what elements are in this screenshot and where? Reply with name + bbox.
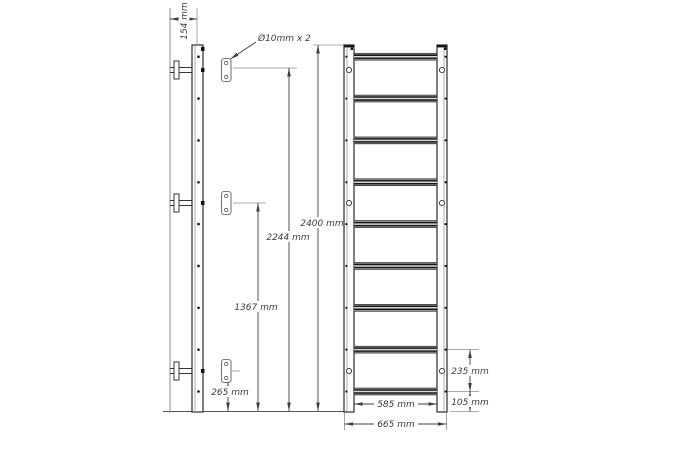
plate-hole — [225, 362, 228, 365]
rung-screw — [445, 223, 447, 225]
rung-screw — [445, 56, 447, 58]
plate-hole — [225, 75, 228, 78]
rung-screw — [445, 265, 447, 267]
label-overall-width: 665 mm — [377, 420, 415, 430]
rung — [354, 346, 437, 354]
rung — [354, 304, 437, 312]
rung — [354, 388, 437, 396]
rung-screw — [345, 390, 347, 392]
leader-mount-holes — [231, 42, 257, 59]
plate-hole — [225, 376, 228, 379]
wall-bracket-side — [170, 362, 192, 380]
bracket-wall-plate — [174, 362, 179, 380]
left-rail-top-dot — [351, 48, 353, 50]
rung-screw — [445, 181, 447, 183]
bracket-stud — [201, 369, 205, 373]
side-rung-pin — [197, 181, 200, 184]
side-rung-pin — [197, 390, 200, 393]
label-top-bracket-height: 2244 mm — [266, 233, 310, 243]
bracket-wall-plate — [174, 194, 179, 212]
rung — [354, 137, 437, 145]
bracket-stud — [201, 68, 205, 72]
rung — [354, 95, 437, 103]
right-rail-top-dot — [444, 48, 446, 50]
rung-screw — [345, 181, 347, 183]
label-depth: 154 mm — [180, 2, 190, 40]
rung-screw — [345, 307, 347, 309]
rung-screw — [445, 97, 447, 99]
side-rung-pin — [197, 265, 200, 268]
side-rung-pin — [197, 97, 200, 100]
rail-mount-hole — [439, 67, 444, 72]
side-rung-pin — [197, 348, 200, 351]
label-mid-bracket-height: 1367 mm — [234, 303, 278, 313]
side-rung-pin — [197, 139, 200, 142]
rung-screw — [345, 139, 347, 141]
rail-mount-hole — [346, 368, 351, 373]
plate-hole — [225, 208, 228, 211]
label-overall-height: 2400 mm — [300, 219, 344, 229]
rail-top-stud — [201, 47, 205, 51]
side-rung-pin — [197, 223, 200, 226]
rung-screw — [345, 223, 347, 225]
right-rail — [437, 45, 447, 412]
rung-screw — [345, 349, 347, 351]
technical-drawing: 154 mm Ø10mm x 2 2400 mm 2244 mm 1367 mm… — [0, 0, 681, 450]
bracket-stud — [201, 201, 205, 205]
left-rail — [344, 45, 354, 412]
rung-screw — [445, 390, 447, 392]
label-bottom-rung-height: 105 mm — [451, 398, 489, 408]
plate-hole — [225, 61, 228, 64]
rung — [354, 262, 437, 270]
rung — [354, 53, 437, 61]
rung-screw — [345, 265, 347, 267]
side-rail-profile — [192, 45, 203, 412]
bracket-wall-plate — [174, 61, 179, 79]
rail-mount-hole — [346, 67, 351, 72]
rung-screw — [345, 97, 347, 99]
rung-screw — [445, 349, 447, 351]
rung — [354, 220, 437, 228]
wall-mount-plate — [222, 59, 232, 82]
side-rung-pin — [197, 307, 200, 310]
side-rung-pin — [197, 55, 200, 58]
wall-bracket-side — [170, 61, 192, 79]
label-rung-gap: 235 mm — [451, 367, 489, 377]
wall-mount-plate — [222, 192, 232, 215]
rungs — [354, 53, 437, 395]
drawing-canvas: 154 mm Ø10mm x 2 2400 mm 2244 mm 1367 mm… — [0, 0, 681, 450]
rung-screw — [445, 307, 447, 309]
label-bottom-bracket-height: 265 mm — [211, 388, 249, 398]
rail-mount-hole — [346, 200, 351, 205]
rung — [354, 179, 437, 187]
rail-mount-hole — [439, 200, 444, 205]
rung-screw — [345, 56, 347, 58]
wall-bracket-side — [170, 194, 192, 212]
rail-mount-hole — [439, 368, 444, 373]
wall-mount-plate — [222, 360, 232, 383]
label-inner-width: 585 mm — [377, 400, 415, 410]
label-mount-holes: Ø10mm x 2 — [257, 33, 311, 44]
rung-screw — [445, 139, 447, 141]
plate-hole — [225, 194, 228, 197]
